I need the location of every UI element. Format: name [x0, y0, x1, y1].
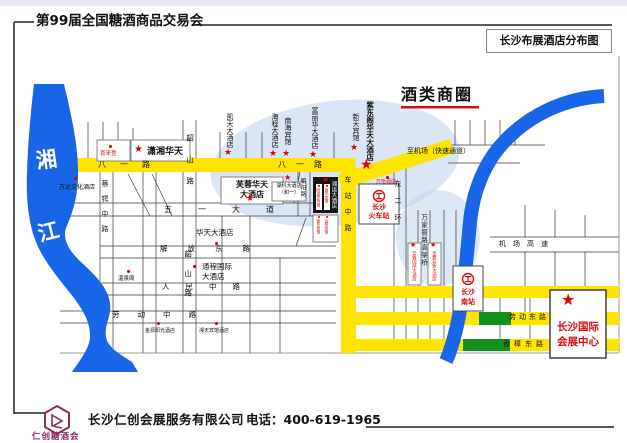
- hotel-dot: [326, 216, 328, 218]
- road-label-xiangzhang-east: 香樟东路: [503, 340, 547, 348]
- hotel-label-sheraton: 喜来登: [100, 151, 117, 157]
- road-label-bayi-east: 八一路: [278, 160, 332, 169]
- hotel-label-wanyi: 万怡酒店: [376, 180, 396, 186]
- footer-phone: 电话：400-619-1965: [246, 413, 381, 427]
- road-label-laodong-east: 劳动东路: [509, 313, 549, 321]
- hotel-label-apollo: 阿波罗宾馆: [317, 188, 321, 207]
- hotel-label-shengjue: 圣爵菲斯大酒店: [431, 251, 436, 281]
- hotel-label-wenquange: 温泉阁: [118, 276, 135, 282]
- business-circle-title: 酒类商圈: [401, 86, 473, 104]
- hotel-star-icon: ★: [410, 242, 416, 249]
- business-circle-underline: [401, 106, 479, 109]
- hotel-dot: [193, 265, 196, 268]
- road-label-bayi-west: 八一路: [98, 160, 164, 169]
- hotel-star-icon: ★: [284, 174, 291, 182]
- header-title: 第99届全国糖酒商品交易会: [36, 14, 203, 30]
- road-label-airport-expwy: 机场高速: [499, 240, 555, 248]
- hotel-label-haicheng: 海程大酒店: [271, 113, 279, 148]
- hotel-label-huaya: 华雅国际大酒店: [411, 251, 416, 281]
- hotel-label-xintian: 新天宾馆: [352, 113, 360, 141]
- road-label-jiefang: 解放东路: [160, 245, 270, 254]
- road-label-chezhan: 车站中路: [344, 176, 352, 240]
- hotel-label-fulihua: 富丽华大酒店: [311, 107, 319, 149]
- road-label-caie: 蔡锷中路: [101, 180, 109, 240]
- hotel-dot: [326, 185, 328, 187]
- hotel-star-icon: ★: [246, 195, 254, 204]
- hotel-dot: [318, 185, 320, 187]
- hotel-label-zijin: 紫金宾馆: [317, 219, 321, 234]
- south-station-name-2: 南站: [453, 298, 483, 306]
- hotel-dot: [157, 322, 160, 325]
- hotel-star-icon: ★: [322, 176, 329, 184]
- hotel-label-jinyuan: 金源阳光酒店: [145, 329, 175, 335]
- road-label-shaoshan-north: 韶山路: [185, 134, 194, 199]
- hotel-label-zhanqian: 站前宾馆: [325, 219, 329, 234]
- south-station-name-1: 长沙: [453, 288, 483, 296]
- hotel-star-icon: ★: [282, 150, 290, 159]
- railway-station-name-1: 长沙: [359, 203, 399, 211]
- logo-text: 仁创糖酒会: [32, 433, 80, 443]
- hotel-star-icon: ★: [360, 158, 373, 172]
- road-label-wuyi: 五一大道: [164, 205, 300, 214]
- hotel-label-xiaoxiang-huatian: 潇湘华天: [147, 147, 183, 157]
- road-label-renmin: 人民中路: [162, 283, 256, 292]
- hotel-label-nanhai: 南海宾馆: [284, 117, 292, 145]
- hotel-dot: [74, 177, 77, 180]
- hotel-dot: [109, 145, 112, 148]
- map-subtitle: 长沙布展酒店分布图: [486, 29, 612, 53]
- map-graphics: [0, 0, 627, 443]
- hotel-label-huke-2: （和一）: [273, 191, 305, 197]
- hotel-label-kaitian: 凯天大酒店: [226, 113, 234, 148]
- hotel-label-tongcheng-2: 大酒店: [202, 273, 225, 282]
- hotel-label-xiangtian: 湘天宾馆酒店: [199, 329, 229, 335]
- hotel-star-icon: ★: [269, 150, 277, 159]
- venue-name-2: 会展中心: [550, 336, 606, 348]
- hotel-dot: [318, 216, 320, 218]
- railway-station-name-2: 火车站: [359, 212, 399, 220]
- airport-note: 至机场（快速通道）: [407, 147, 470, 155]
- road-label-shaoshan-south: 韶山路: [183, 250, 192, 309]
- hotel-label-tongcheng: 通程国际: [202, 263, 232, 272]
- hotel-star-icon: ★: [224, 149, 232, 158]
- hotel-star-icon: ★: [309, 151, 317, 160]
- river-char-xiang: 湘: [34, 147, 58, 174]
- hotel-label-wanda: 万达文化酒店: [59, 185, 95, 192]
- venue-star-icon: ★: [561, 292, 575, 308]
- hotel-star-icon: ★: [134, 145, 143, 155]
- green-segment-laodong: [479, 312, 511, 325]
- hotel-label-huke: 湖科大酒店: [273, 184, 305, 190]
- top-strip: [0, 0, 627, 6]
- hotel-dot: [386, 176, 389, 179]
- hotel-star-icon: ★: [430, 242, 436, 249]
- road-label-wanjiali: 万家丽路高架桥: [419, 214, 426, 267]
- hotel-label-yinhua: 银华宾馆: [325, 188, 329, 203]
- road-label-laodong-middle: 劳动中路: [112, 311, 214, 320]
- footer-company: 长沙仁创会展服务有限公司: [88, 413, 244, 427]
- hotel-dot: [127, 270, 130, 273]
- map-page: 第99届全国糖酒商品交易会 长沙布展酒店分布图 湘 江 酒类商圈 至机场（快速通…: [0, 0, 627, 443]
- hotel-label-zidongge: 紫东阁华天大酒店: [365, 101, 374, 161]
- venue-name-1: 长沙国际: [550, 321, 606, 333]
- hotel-star-icon: ★: [350, 144, 358, 153]
- hotel-label-huatian: 华天大酒店: [196, 229, 234, 238]
- hotel-dot: [215, 242, 218, 245]
- hotel-dot: [215, 322, 218, 325]
- hotel-label-xiangyun: 湘运大酒店: [330, 181, 336, 209]
